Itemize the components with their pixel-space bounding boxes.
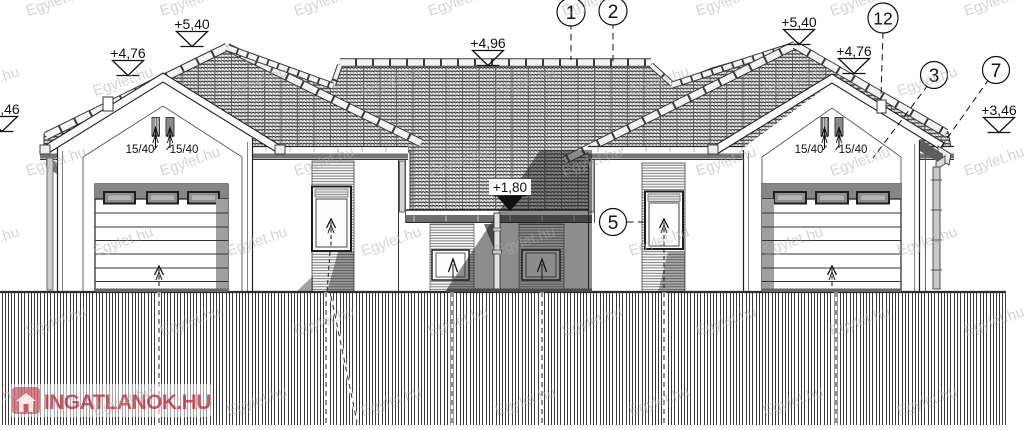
svg-text:+3,46: +3,46 [0,101,20,117]
svg-text:5: 5 [608,213,619,234]
svg-text:15/40: 15/40 [126,144,155,156]
svg-text:+3,46: +3,46 [981,102,1017,118]
svg-text:+5,40: +5,40 [174,16,210,32]
svg-text:+1,80: +1,80 [493,180,527,195]
svg-text:15/40: 15/40 [795,144,824,156]
svg-text:+5,40: +5,40 [781,14,817,30]
svg-text:+4,76: +4,76 [836,43,872,59]
svg-text:+4,76: +4,76 [110,45,146,61]
svg-text:12: 12 [873,8,892,28]
svg-text:+4,96: +4,96 [470,35,506,51]
svg-text:7: 7 [991,61,1002,82]
svg-text:2: 2 [608,2,619,23]
